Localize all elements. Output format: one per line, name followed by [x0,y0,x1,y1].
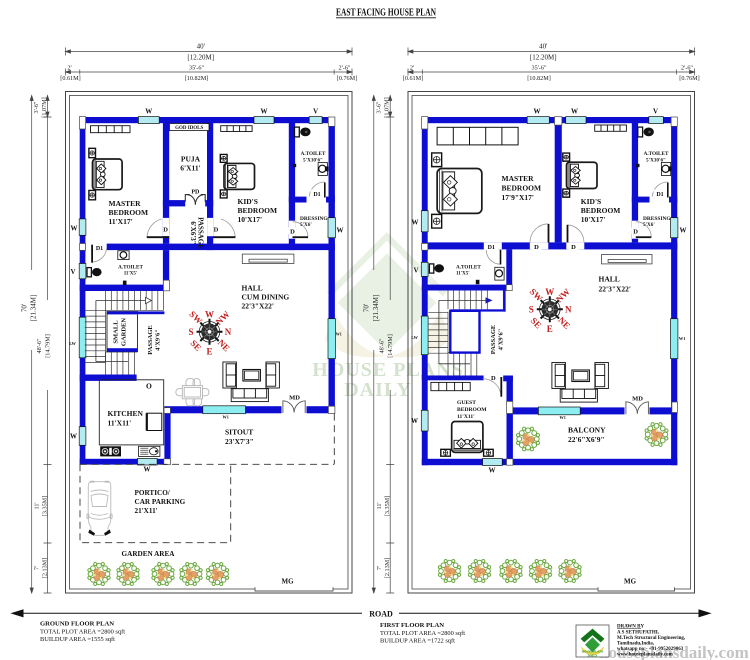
svg-text:whatsapp no:- +91-9952029063: whatsapp no:- +91-9952029063 [617,647,684,652]
svg-text:11'X11': 11'X11' [108,419,132,428]
svg-text:[3.35M]: [3.35M] [42,496,49,516]
svg-text:70': 70' [21,304,29,312]
svg-text:3'-6": 3'-6" [376,101,383,113]
svg-text:11'X5': 11'X5' [124,272,138,277]
svg-text:A.TOILET: A.TOILET [118,265,143,271]
svg-text:PASSAGE: PASSAGE [490,325,497,355]
svg-text:7': 7' [376,566,383,570]
svg-text:17'9"X17': 17'9"X17' [502,193,535,202]
svg-text:35'-6": 35'-6" [189,65,204,72]
svg-text:4'X9'6": 4'X9'6" [155,329,162,351]
svg-text:3'-6": 3'-6" [33,101,40,113]
svg-text:[12.20M]: [12.20M] [530,54,557,62]
svg-text:A.TOILET: A.TOILET [301,151,326,157]
svg-text:Tamilnadu,India,: Tamilnadu,India, [617,642,655,647]
svg-text:22'6"X6'9": 22'6"X6'9" [568,435,605,444]
svg-text:7': 7' [34,566,41,570]
svg-text:A S SETHUPATHI,: A S SETHUPATHI, [617,631,660,636]
svg-text:KID'S: KID'S [581,197,601,206]
svg-text:5'X6': 5'X6' [643,222,655,228]
svg-text:21'X11': 21'X11' [135,507,158,515]
svg-text:[2.13M]: [2.13M] [42,558,49,578]
svg-text:W: W [534,108,541,116]
svg-text:W: W [337,227,344,235]
svg-text:40': 40' [197,43,205,51]
svg-text:4'X9'6": 4'X9'6" [498,329,505,351]
svg-text:11'X17': 11'X17' [109,217,133,226]
svg-text:D1: D1 [96,246,103,252]
svg-text:MD: MD [632,396,643,403]
svg-text:CAR PARKING: CAR PARKING [135,498,186,506]
svg-text:2'-6": 2'-6" [339,65,351,72]
svg-text:O: O [146,382,152,391]
svg-text:6'X11': 6'X11' [180,164,200,173]
svg-text:W1: W1 [223,415,229,420]
svg-text:GROUND FLOOR PLAN: GROUND FLOOR PLAN [40,621,114,628]
svg-text:A.TOILET: A.TOILET [644,151,669,157]
svg-text:HALL: HALL [242,284,263,293]
svg-text:SITOUT: SITOUT [225,428,253,437]
svg-text:D1: D1 [656,192,663,198]
svg-text:23'X7'3": 23'X7'3" [225,437,254,446]
svg-text:MG: MG [624,578,637,586]
svg-text:BEDROOM: BEDROOM [581,206,621,215]
svg-text:SMALL: SMALL [113,320,120,344]
svg-text:W: W [145,108,152,116]
svg-text:W1: W1 [336,332,342,337]
svg-text:D: D [214,226,219,233]
svg-text:KID'S: KID'S [238,197,258,206]
svg-text:GUEST: GUEST [457,400,476,406]
svg-text:[21.34M]: [21.34M] [372,295,380,322]
svg-text:11'X11': 11'X11' [457,414,475,420]
svg-text:A.TOILET: A.TOILET [456,265,481,271]
svg-text:40': 40' [539,43,547,51]
svg-text:[14.79M]: [14.79M] [387,334,394,358]
svg-text:48'-6": 48'-6" [379,338,386,353]
svg-text:MASTER: MASTER [502,174,535,183]
svg-text:[0.76M]: [0.76M] [337,75,357,82]
svg-text:11': 11' [376,502,383,509]
svg-text:EAST FACING HOUSE PLAN: EAST FACING HOUSE PLAN [336,8,436,19]
svg-text:BEDROOM: BEDROOM [238,206,278,215]
svg-text:2': 2' [410,65,414,72]
svg-text:22'3"X22': 22'3"X22' [242,302,275,311]
svg-text:D: D [571,244,576,251]
svg-text:48'-6": 48'-6" [36,338,43,353]
svg-text:W: W [489,467,496,475]
svg-text:11': 11' [34,502,41,509]
svg-text:M.Tech Structural Engineering,: M.Tech Structural Engineering, [617,636,686,641]
svg-text:BALCONY: BALCONY [568,426,606,435]
svg-text:D: D [290,229,295,236]
svg-text:BEDROOM: BEDROOM [457,407,487,413]
svg-text:[1.07M]: [1.07M] [384,97,391,117]
svg-text:V: V [70,268,75,276]
svg-text:[0.61M]: [0.61M] [60,75,80,82]
svg-text:35'-6": 35'-6" [532,65,547,72]
svg-text:22'3"X22': 22'3"X22' [599,285,632,294]
svg-text:BEDROOM: BEDROOM [502,184,542,193]
svg-text:D1: D1 [488,245,495,251]
svg-text:GARDEN AREA: GARDEN AREA [122,550,176,558]
svg-text:2'-6": 2'-6" [681,65,693,72]
svg-text:W: W [70,433,77,441]
svg-text:MD: MD [289,395,300,402]
svg-text:CUM DINING: CUM DINING [242,293,290,302]
svg-text:10'X17': 10'X17' [581,215,606,224]
svg-text:HALL: HALL [599,275,620,284]
svg-text:70': 70' [363,304,371,312]
svg-text:W: W [571,108,578,116]
svg-text:MG: MG [281,578,294,586]
svg-text:V: V [313,108,318,116]
svg-text:W: W [680,227,687,235]
svg-text:GOD IDOLS: GOD IDOLS [175,126,203,131]
svg-text:[12.20M]: [12.20M] [187,54,214,62]
svg-text:6'X6'3": 6'X6'3" [189,221,197,244]
svg-text:[0.61M]: [0.61M] [403,75,423,82]
svg-text:V: V [413,267,418,275]
svg-text:BUILDUP AREA =1722 sqft: BUILDUP AREA =1722 sqft [380,638,455,645]
svg-text:V: V [653,108,658,116]
svg-text:11'X5': 11'X5' [456,272,470,277]
svg-text:W: W [411,417,418,425]
svg-text:DAILY: DAILY [588,653,598,657]
svg-text:D: D [491,375,496,382]
svg-text:W1: W1 [560,415,566,420]
svg-text:ROAD: ROAD [369,609,393,618]
svg-text:PORTICO/: PORTICO/ [135,489,171,497]
svg-text:[10.82M]: [10.82M] [185,75,209,82]
svg-text:D: D [534,244,539,251]
svg-text:[3.35M]: [3.35M] [384,496,391,516]
svg-text:TOTAL PLOT AREA =2800 sqft: TOTAL PLOT AREA =2800 sqft [380,630,465,637]
svg-text:[1.07M]: [1.07M] [41,97,48,117]
svg-text:GARDEN: GARDEN [121,318,128,346]
svg-text:W: W [71,225,78,233]
svg-text:KITCHEN: KITCHEN [108,409,144,418]
svg-text:[2.13M]: [2.13M] [384,558,391,578]
svg-text:BEDROOM: BEDROOM [109,208,149,217]
svg-text:TOTAL PLOT AREA =2800 sqft: TOTAL PLOT AREA =2800 sqft [40,629,125,636]
svg-text:LW: LW [411,335,418,340]
svg-text:www.houseplansdaily.com: www.houseplansdaily.com [617,653,674,658]
svg-text:FIRST FLOOR PLAN: FIRST FLOOR PLAN [380,622,444,629]
svg-text:PD: PD [191,189,200,195]
svg-text:BUILDUP AREA =1555 sqft: BUILDUP AREA =1555 sqft [40,636,115,643]
svg-text:W: W [261,108,268,116]
svg-text:[10.82M]: [10.82M] [527,75,551,82]
svg-text:W1: W1 [679,336,687,341]
svg-text:D: D [633,229,638,236]
svg-text:PASSAGE: PASSAGE [147,325,154,355]
svg-text:MASTER: MASTER [109,199,142,208]
svg-text:[0.76M]: [0.76M] [679,75,699,82]
svg-text:2': 2' [67,65,71,72]
svg-text:W: W [144,466,151,474]
svg-text:PUJA: PUJA [181,155,201,164]
svg-text:5'X6': 5'X6' [300,222,312,228]
svg-text:10'X17': 10'X17' [238,215,263,224]
svg-text:DAILY: DAILY [344,379,412,401]
svg-text:D: D [163,226,168,233]
svg-text:W: W [412,219,419,227]
svg-text:[14.79M]: [14.79M] [45,334,52,358]
svg-text:LW: LW [69,341,76,346]
svg-text:D1: D1 [313,192,320,198]
svg-text:[21.34M]: [21.34M] [30,295,38,322]
